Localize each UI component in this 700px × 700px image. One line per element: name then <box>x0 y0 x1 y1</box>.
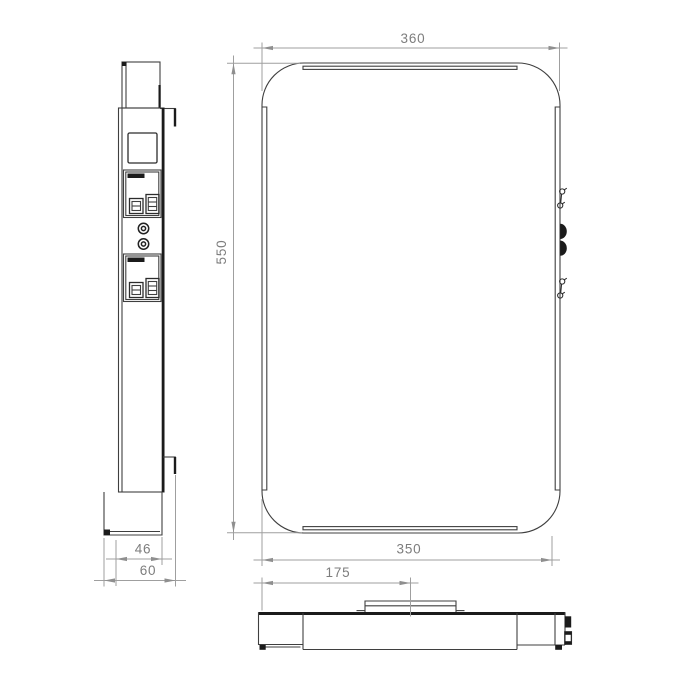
front-view: 360 550 350 <box>214 31 568 566</box>
dimension-46: 46 <box>106 537 172 586</box>
side-top-bracket <box>122 62 160 108</box>
technical-drawing-canvas: 46 60 <box>0 0 700 700</box>
right-side-strip <box>555 107 560 490</box>
front-panel-outline <box>262 63 560 533</box>
knob-upper <box>138 223 148 233</box>
top-seam-strip <box>303 66 517 69</box>
wall-hook-bottom-icon <box>163 457 176 474</box>
terminal-block-lower <box>124 254 162 302</box>
power-connector <box>565 616 572 644</box>
orthographic-views-svg: 46 60 <box>0 0 700 700</box>
bottom-view: 175 <box>254 565 572 650</box>
dim-label-60: 60 <box>140 563 157 578</box>
left-side-strip <box>262 107 267 490</box>
foot-left <box>260 645 266 650</box>
display-window <box>128 133 157 163</box>
dim-label-350: 350 <box>397 542 422 557</box>
bottom-seam-strip <box>303 527 517 530</box>
dimension-175: 175 <box>254 565 419 617</box>
bracket-notch <box>122 62 127 66</box>
label-bar <box>128 174 145 179</box>
dim-label-360: 360 <box>401 31 426 46</box>
dim-label-46: 46 <box>135 542 152 557</box>
side-view: 46 60 <box>94 62 186 587</box>
foot <box>104 530 110 536</box>
foot-right <box>555 645 562 650</box>
label-bar <box>128 258 145 263</box>
side-bottom-bracket <box>104 492 162 535</box>
cable-clip-upper-icon <box>558 188 567 208</box>
dimension-550: 550 <box>214 56 302 541</box>
dimension-360: 360 <box>254 31 568 91</box>
terminal-block-upper <box>124 170 162 218</box>
dim-label-550: 550 <box>214 240 229 265</box>
knob-bumps-profile <box>560 224 567 256</box>
cable-clip-lower-icon <box>558 278 567 298</box>
dim-label-175: 175 <box>326 565 351 580</box>
knob-lower <box>138 239 148 249</box>
